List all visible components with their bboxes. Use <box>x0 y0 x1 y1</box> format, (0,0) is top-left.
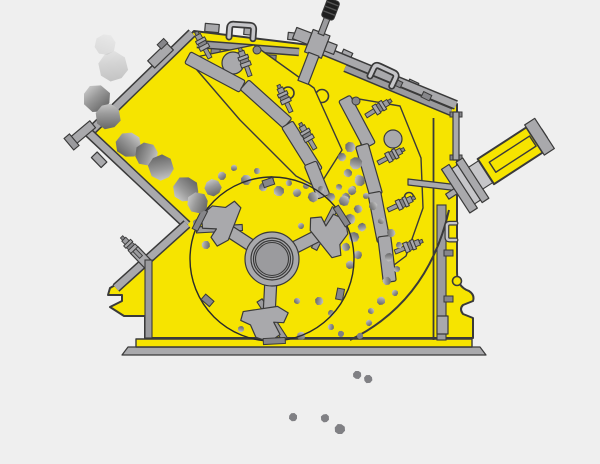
rotor-hub <box>245 232 299 286</box>
left-wall-liner <box>145 260 152 338</box>
crusher-diagram-canvas <box>0 0 600 464</box>
base-skid <box>122 339 486 355</box>
rock <box>319 412 330 423</box>
apron-upper-pin <box>253 46 261 54</box>
rock <box>289 413 297 421</box>
rock <box>353 371 361 379</box>
apron-right-pivot <box>384 130 402 148</box>
apron-right-pin <box>352 97 360 105</box>
rocks-faded <box>91 31 133 86</box>
wall-hole <box>453 277 462 286</box>
rock <box>362 373 373 384</box>
impact-crusher-diagram <box>0 0 600 464</box>
wall-pipe <box>453 112 459 160</box>
rock <box>335 424 345 434</box>
